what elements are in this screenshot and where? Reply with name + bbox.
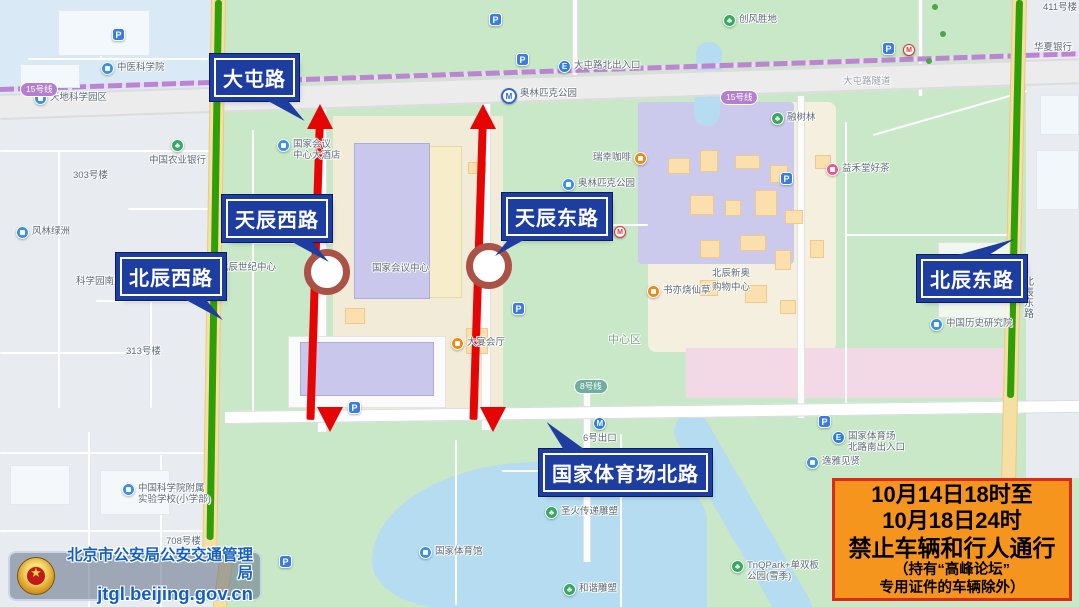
place-icon xyxy=(16,226,29,239)
map-poi[interactable]: 融树林 xyxy=(771,112,816,125)
map-building xyxy=(1036,150,1079,210)
tree-poi-icon xyxy=(545,506,558,519)
shop-icon xyxy=(451,337,464,350)
map-building xyxy=(725,200,741,216)
map-path xyxy=(58,152,60,408)
map-poi[interactable]: 中医科学院 xyxy=(101,62,165,75)
map-poi[interactable]: 708号楼 xyxy=(166,536,201,547)
map-poi[interactable]: 303号楼 xyxy=(73,170,108,181)
agency-banner: 北京市公安局公安交通管理局 jtgl.beijing.gov.cn xyxy=(8,551,262,601)
notice-line: 禁止车辆和行人通行 xyxy=(849,535,1056,563)
poi-label: 中医科学院 xyxy=(117,62,165,73)
place-icon xyxy=(277,139,290,152)
map-poi[interactable]: 15号线 xyxy=(20,82,58,97)
map-poi[interactable]: 和谐雕塑 xyxy=(563,583,617,596)
map-poi[interactable]: 中国农业银行 xyxy=(149,139,206,166)
map-building xyxy=(700,240,720,258)
notice-line: 专用证件的车辆除外） xyxy=(880,580,1025,597)
poi-label: 书亦烧仙草 xyxy=(663,285,711,296)
map-building xyxy=(785,210,803,224)
map-building xyxy=(1040,95,1079,135)
poi-label: 大屯路隧道 xyxy=(843,76,891,87)
road-label-text: 北辰西路 xyxy=(129,268,213,290)
map-building xyxy=(668,158,690,174)
map-poi[interactable]: 奥林匹克公园 xyxy=(501,88,577,104)
map-building xyxy=(354,143,430,299)
tree-icon xyxy=(940,31,946,37)
map-path xyxy=(128,208,213,210)
tree-poi-icon xyxy=(731,560,744,573)
map-poi[interactable]: 国家体育场北路南出入口 xyxy=(832,431,905,453)
map-poi[interactable]: 北辰东路 xyxy=(1024,278,1035,320)
map-poi[interactable]: 华夏银行 xyxy=(1034,42,1072,53)
map-poi[interactable]: 中心区 xyxy=(608,335,641,346)
map-poi[interactable]: 国家会议中心大酒店 xyxy=(277,139,341,161)
poi-label: 天地科学园区 xyxy=(50,92,107,103)
station-icon xyxy=(501,88,517,104)
metro-station-icon xyxy=(593,417,606,430)
map-poi[interactable] xyxy=(818,415,831,428)
poi-label: 北辰世纪中心 xyxy=(219,262,276,273)
poi-label: 和谐雕塑 xyxy=(579,583,617,594)
arrowhead-down-icon xyxy=(480,407,506,432)
map-poi[interactable] xyxy=(489,13,502,26)
map-poi[interactable] xyxy=(516,53,529,66)
milktea-icon xyxy=(826,163,839,176)
place-icon xyxy=(562,178,575,191)
poi-label: 益禾堂好茶 xyxy=(842,163,890,174)
police-badge-icon xyxy=(17,557,55,595)
map-path xyxy=(873,90,1027,136)
map-building xyxy=(700,150,718,172)
parking-icon xyxy=(882,42,895,55)
map-poi[interactable]: 大宴会厅 xyxy=(451,337,505,350)
map-building xyxy=(755,190,777,216)
road-mall-east xyxy=(797,96,805,418)
arrowhead-up-icon xyxy=(307,104,333,129)
map-poi[interactable]: 大屯路隧道 xyxy=(843,76,891,87)
poi-label: 北辰新奥 xyxy=(712,268,750,279)
tree-poi-icon xyxy=(771,112,784,125)
map-poi[interactable] xyxy=(348,401,361,414)
map-poi[interactable] xyxy=(279,555,292,568)
road-label-callout: 北辰西路 xyxy=(120,257,222,296)
agency-name: 北京市公安局公安交通管理局 xyxy=(59,547,253,584)
metro-exit-icon xyxy=(558,60,571,73)
place-icon xyxy=(101,62,114,75)
parking-icon xyxy=(780,172,793,185)
map-path xyxy=(0,452,215,454)
road-label-callout: 国家体育场北路 xyxy=(543,453,708,492)
map-path xyxy=(0,530,215,532)
map-poi[interactable]: 411号楼 xyxy=(1043,2,1077,13)
poi-label: 圣火传递雕塑 xyxy=(561,506,618,517)
map-poi[interactable] xyxy=(512,302,525,315)
notice-line: 10月14日18时至 xyxy=(871,482,1032,508)
parking-icon xyxy=(112,28,125,41)
road-label-callout: 天辰西路 xyxy=(226,199,328,238)
map-canvas[interactable]: 10月14日18时至 10月18日24时 禁止车辆和行人通行 （持有“高峰论坛”… xyxy=(0,0,1079,607)
poi-label: 奥林匹克公园 xyxy=(578,178,635,189)
parking-icon xyxy=(818,415,831,428)
poi-label: 708号楼 xyxy=(166,536,201,547)
place-icon xyxy=(419,546,432,559)
place-icon xyxy=(930,318,943,331)
map-path xyxy=(845,234,1020,236)
poi-label: 国家会议中心大酒店 xyxy=(293,139,341,161)
arrowhead-down-icon xyxy=(317,407,343,432)
road-label-callout: 大屯路 xyxy=(214,58,295,97)
map-poi[interactable]: 15号线 xyxy=(720,90,758,105)
parking-icon xyxy=(489,13,502,26)
tree-icon xyxy=(932,4,938,10)
poi-label: 北辰东路 xyxy=(1024,278,1035,320)
parking-icon xyxy=(516,53,529,66)
road-label-text: 天辰东路 xyxy=(515,208,599,230)
poi-label: 中心区 xyxy=(608,335,641,346)
shop-icon xyxy=(647,285,660,298)
map-poi[interactable]: 逸雅见贤 xyxy=(806,456,860,469)
poi-label: 中国科学院附属实验学校(小学部) xyxy=(138,483,211,505)
poi-label: 303号楼 xyxy=(73,170,108,181)
map-poi[interactable]: 国家体育馆 xyxy=(419,546,483,559)
metro-exit-icon xyxy=(832,431,845,444)
map-path xyxy=(455,440,457,605)
callout-tail-icon xyxy=(547,422,587,451)
poi-label: 15号线 xyxy=(20,82,58,97)
map-building xyxy=(810,240,824,258)
notice-line: 10月18日24时 xyxy=(882,508,1021,534)
tree-icon xyxy=(926,58,932,64)
poi-label: 411号楼 xyxy=(1043,2,1077,13)
poi-label: 瑞幸咖啡 xyxy=(593,152,631,163)
poi-label: 华夏银行 xyxy=(1034,42,1072,53)
map-building xyxy=(428,146,462,298)
map-path xyxy=(28,58,208,60)
map-poi[interactable]: 国家会议中心 xyxy=(372,263,429,274)
road-label-text: 国家体育场北路 xyxy=(552,464,699,486)
parking-icon xyxy=(279,555,292,568)
map-poi[interactable]: 中国科学院附属实验学校(小学部) xyxy=(122,483,211,505)
map-poi[interactable]: 北辰新奥 xyxy=(712,268,750,279)
metro-entrance-icon xyxy=(614,226,626,238)
map-poi[interactable]: 创风胜地 xyxy=(723,14,777,27)
poi-label: 国家体育馆 xyxy=(435,546,483,557)
notice-line: （持有“高峰论坛” xyxy=(894,562,1010,579)
poi-label: 大宴会厅 xyxy=(467,337,505,348)
road-label-callout: 北辰东路 xyxy=(921,259,1023,298)
map-building xyxy=(58,10,150,56)
agency-text: 北京市公安局公安交通管理局 jtgl.beijing.gov.cn xyxy=(59,547,253,605)
map-poi[interactable]: 奥林匹克公园 xyxy=(562,178,635,191)
poi-label: 融树林 xyxy=(787,112,816,123)
agency-url: jtgl.beijing.gov.cn xyxy=(59,583,253,605)
poi-label: 15号线 xyxy=(720,90,758,105)
road-label-text: 天辰西路 xyxy=(235,210,319,232)
poi-label: 国家会议中心 xyxy=(372,263,429,274)
map-building xyxy=(300,342,434,396)
poi-label: 风林绿洲 xyxy=(32,226,70,237)
arrowhead-up-icon xyxy=(470,104,496,129)
parking-icon xyxy=(512,302,525,315)
poi-label: 313号楼 xyxy=(126,346,161,357)
map-poi[interactable]: 大屯路北出入口 xyxy=(558,60,641,73)
map-poi[interactable] xyxy=(882,42,895,55)
map-poi[interactable] xyxy=(614,226,626,238)
place-icon xyxy=(806,456,819,469)
poi-label: 中国历史研究院 xyxy=(946,318,1013,329)
poi-label: 国家体育场北路南出入口 xyxy=(848,431,905,453)
tree-poi-icon xyxy=(563,583,576,596)
parking-icon xyxy=(348,401,361,414)
road-label-callout: 天辰东路 xyxy=(506,197,608,236)
map-poi[interactable]: TnQPark+单双板公园(雪季) xyxy=(731,560,819,582)
metro-entrance-icon xyxy=(903,44,915,56)
poi-label: 购物中心 xyxy=(712,282,750,293)
tree-poi-icon xyxy=(171,139,184,152)
poi-label: 逸雅见贤 xyxy=(822,456,860,467)
poi-label: 中国农业银行 xyxy=(149,155,206,166)
map-poi[interactable]: 313号楼 xyxy=(126,346,161,357)
poi-label: 奥林匹克公园 xyxy=(520,88,577,99)
poi-label: 科学园南里 xyxy=(76,276,124,287)
map-poi[interactable]: 6号出口 xyxy=(583,417,617,444)
map-poi[interactable]: 书亦烧仙草 xyxy=(647,285,711,298)
road-closure-circle-icon xyxy=(304,249,350,295)
map-poi[interactable]: 购物中心 xyxy=(712,282,750,293)
map-building xyxy=(10,465,70,505)
map-poi[interactable] xyxy=(780,172,793,185)
map-building xyxy=(690,195,714,215)
map-poi[interactable]: 益禾堂好茶 xyxy=(826,163,890,176)
map-poi[interactable]: 8号线 xyxy=(574,379,608,394)
map-building xyxy=(740,235,766,251)
poi-label: 8号线 xyxy=(574,379,608,394)
map-building xyxy=(780,300,796,314)
map-building xyxy=(775,250,791,270)
poi-label: TnQPark+单双板公园(雪季) xyxy=(747,560,819,582)
road-label-text: 大屯路 xyxy=(223,69,286,91)
map-building xyxy=(735,155,760,169)
map-building xyxy=(345,308,365,324)
traffic-restriction-notice: 10月14日18时至 10月18日24时 禁止车辆和行人通行 （持有“高峰论坛”… xyxy=(832,478,1072,601)
tree-poi-icon xyxy=(723,14,736,27)
map-poi[interactable] xyxy=(903,44,915,56)
map-poi[interactable]: 瑞幸咖啡 xyxy=(593,152,647,165)
shop-icon xyxy=(634,152,647,165)
place-icon xyxy=(122,483,135,496)
map-poi[interactable] xyxy=(112,28,125,41)
map-poi[interactable]: 中国历史研究院 xyxy=(930,318,1013,331)
map-poi[interactable]: 风林绿洲 xyxy=(16,226,70,239)
map-poi[interactable]: 圣火传递雕塑 xyxy=(545,506,618,519)
poi-label: 创风胜地 xyxy=(739,14,777,25)
poi-label: 6号出口 xyxy=(583,433,617,444)
poi-label: 大屯路北出入口 xyxy=(574,60,641,71)
road-label-text: 北辰东路 xyxy=(930,270,1014,292)
